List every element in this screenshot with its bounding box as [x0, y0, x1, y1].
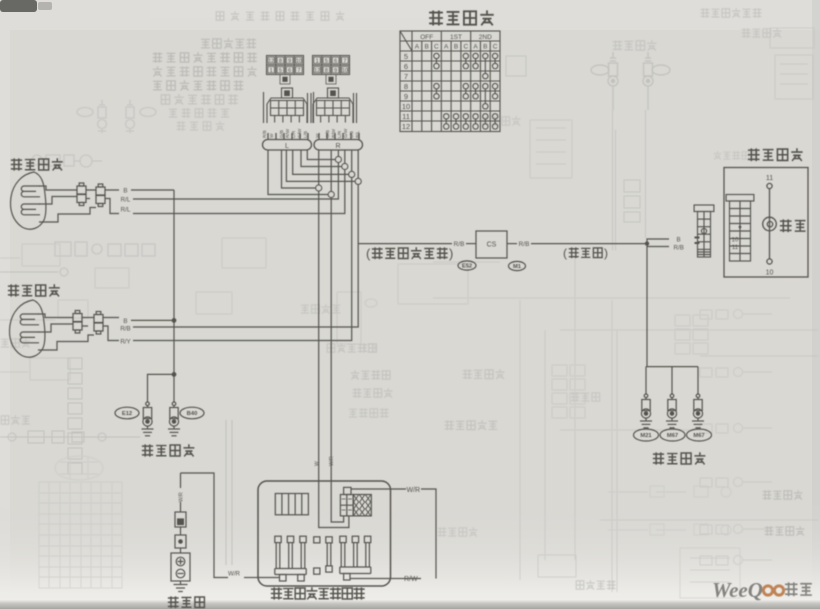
svg-text:L: L	[285, 143, 289, 150]
svg-text:E12: E12	[122, 411, 132, 417]
svg-text:M67: M67	[667, 433, 678, 439]
svg-text:5: 5	[404, 52, 408, 61]
svg-text:M67: M67	[693, 433, 704, 439]
svg-text:12: 12	[314, 68, 320, 74]
svg-text:8: 8	[404, 82, 408, 91]
svg-text:7: 7	[297, 68, 300, 74]
svg-text:(: (	[366, 246, 371, 261]
svg-text:R/B: R/B	[519, 241, 530, 248]
svg-text:L/R: L/R	[337, 130, 342, 138]
svg-text:C: C	[463, 44, 468, 51]
svg-text:1: 1	[270, 68, 273, 74]
svg-text:CS: CS	[487, 242, 497, 249]
svg-text:C: C	[434, 44, 439, 51]
svg-text:R/L: R/L	[121, 196, 131, 203]
svg-text:B: B	[483, 44, 487, 51]
svg-text:): )	[449, 246, 453, 261]
svg-text:R/B: R/B	[454, 241, 465, 248]
svg-text:R/B: R/B	[674, 245, 684, 252]
svg-text:B: B	[123, 187, 127, 194]
svg-text:10: 10	[766, 270, 774, 277]
svg-text:R: R	[335, 143, 340, 150]
svg-text:6: 6	[288, 68, 291, 74]
svg-text:7: 7	[404, 72, 408, 81]
svg-text:R/W: R/W	[404, 576, 418, 583]
svg-text:11: 11	[402, 112, 410, 121]
svg-text:B40: B40	[187, 411, 198, 417]
svg-text:A: A	[415, 44, 420, 51]
svg-text:): )	[604, 246, 608, 260]
svg-text:G/B: G/B	[279, 130, 284, 138]
svg-text:M21: M21	[640, 433, 652, 439]
svg-text:11: 11	[766, 175, 773, 182]
svg-text:10: 10	[342, 68, 348, 74]
svg-text:1ST: 1ST	[450, 34, 462, 41]
svg-text:10: 10	[296, 59, 302, 65]
svg-text:WeeQ: WeeQ	[712, 578, 763, 602]
svg-text:7: 7	[343, 59, 346, 65]
svg-text:5: 5	[279, 68, 282, 74]
svg-text:6: 6	[404, 62, 408, 71]
svg-text:B: B	[123, 318, 127, 325]
svg-text:8: 8	[325, 68, 328, 74]
svg-text:10: 10	[732, 237, 739, 243]
svg-text:W: W	[315, 461, 321, 466]
svg-text:9: 9	[334, 68, 337, 74]
svg-text:12: 12	[402, 122, 410, 131]
svg-text:2ND: 2ND	[479, 34, 492, 41]
svg-text:11: 11	[732, 245, 739, 251]
svg-text:W/R: W/R	[179, 492, 185, 502]
svg-text:R/L: R/L	[121, 206, 131, 213]
svg-text:W: W	[269, 133, 274, 138]
svg-text:R/B: R/B	[262, 130, 267, 138]
svg-text:9: 9	[404, 92, 408, 101]
svg-text:M1: M1	[513, 264, 522, 270]
svg-text:10: 10	[402, 102, 410, 111]
svg-text:W/R: W/R	[228, 571, 241, 578]
svg-text:G/W: G/W	[343, 128, 348, 138]
svg-text:8: 8	[279, 59, 282, 65]
svg-text:5: 5	[325, 59, 328, 65]
svg-text:C: C	[493, 44, 498, 51]
svg-text:(: (	[563, 246, 567, 260]
svg-text:B: B	[425, 44, 429, 51]
svg-text:A: A	[444, 44, 449, 51]
svg-text:12: 12	[268, 59, 274, 65]
svg-text:1: 1	[316, 59, 319, 65]
svg-text:L/B: L/B	[303, 131, 308, 138]
svg-text:R/B: R/B	[120, 325, 130, 332]
svg-text:6: 6	[334, 59, 337, 65]
svg-text:B: B	[677, 237, 681, 244]
svg-text:B: B	[454, 44, 458, 51]
svg-text:R/W: R/W	[285, 128, 290, 138]
svg-text:9: 9	[288, 59, 291, 65]
svg-text:W/R: W/R	[329, 456, 335, 466]
svg-text:W/R: W/R	[407, 487, 421, 494]
svg-text:E52: E52	[462, 264, 472, 270]
svg-text:R/Y: R/Y	[120, 338, 130, 345]
svg-text:OFF: OFF	[420, 34, 433, 41]
svg-text:A: A	[473, 44, 478, 51]
